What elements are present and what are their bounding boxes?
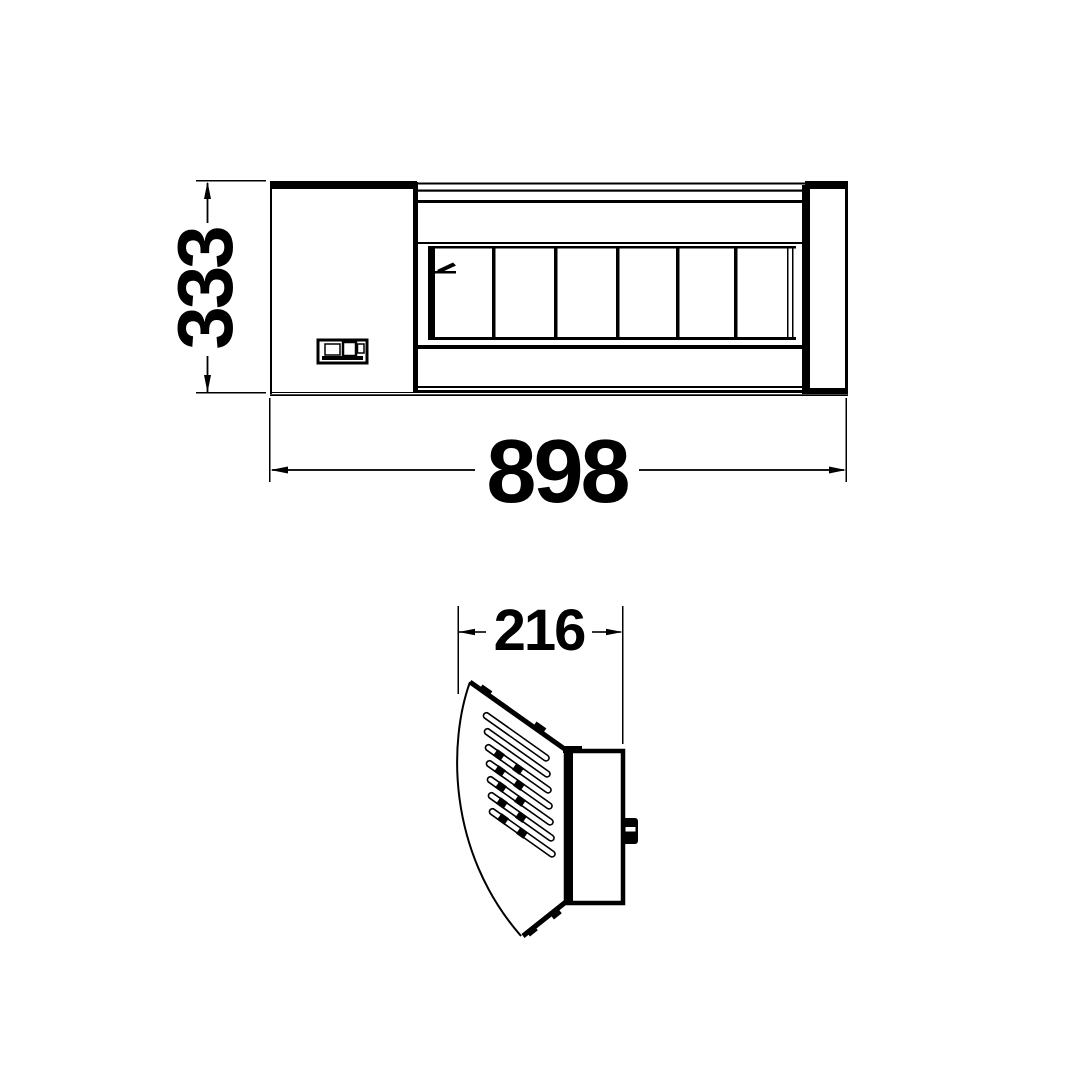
panel-divider [554, 248, 558, 338]
technical-drawing: 333 898 216 [0, 0, 1080, 1080]
knob [622, 818, 638, 844]
dim-height-label: 333 [161, 228, 249, 350]
dim-depth: 216 [458, 598, 624, 744]
panel-divider [492, 248, 496, 338]
arrow-down-icon [204, 375, 211, 393]
front-view [270, 181, 848, 396]
arrow-left-icon [271, 467, 289, 474]
end-cap [805, 181, 848, 394]
arrow-left-icon [459, 629, 476, 635]
body-right-edge [802, 185, 810, 394]
panel-divider [734, 248, 738, 338]
rear-housing [563, 746, 638, 903]
front-panel-band [428, 246, 796, 340]
power-switch [318, 340, 367, 363]
dim-width-label: 898 [486, 422, 628, 522]
arrow-right-icon [829, 467, 846, 474]
side-view [457, 682, 638, 936]
dim-width: 898 [269, 398, 847, 522]
dim-height: 333 [161, 180, 266, 394]
control-box [270, 181, 418, 394]
arrow-up-icon [204, 182, 211, 200]
arrow-right-icon [606, 629, 623, 635]
igniter-bracket [433, 263, 456, 274]
panel-divider [616, 248, 620, 338]
panel-divider [676, 248, 680, 338]
panel-left-bar [428, 246, 435, 340]
dim-depth-label: 216 [494, 598, 586, 663]
